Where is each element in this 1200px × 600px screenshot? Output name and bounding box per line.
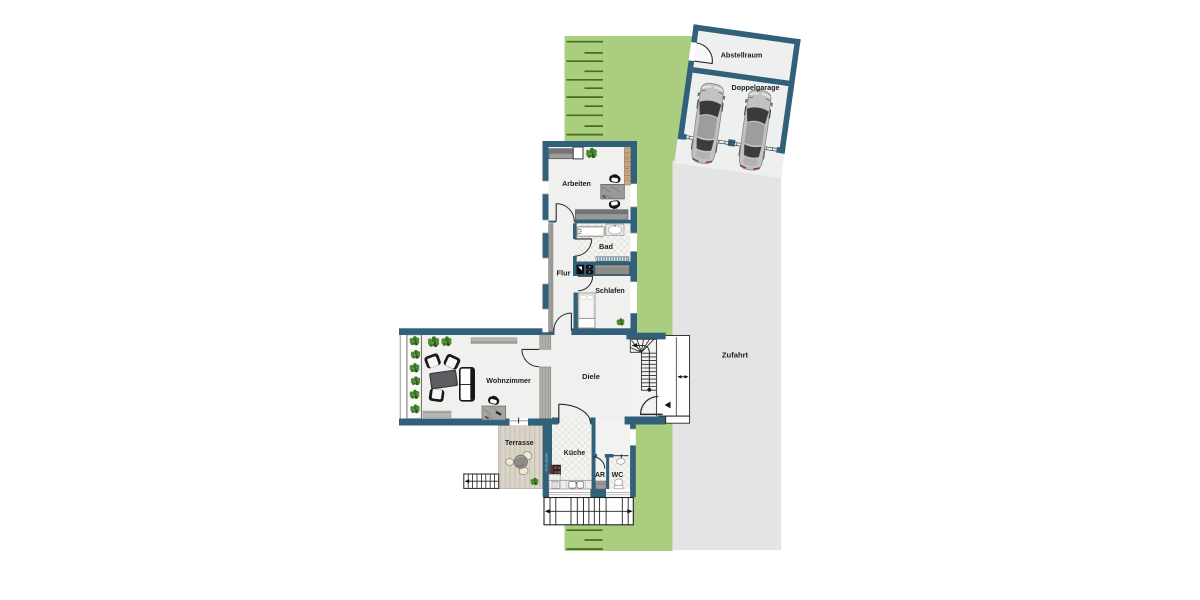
- svg-text:Arbeiten: Arbeiten: [562, 180, 591, 188]
- svg-text:Wohnzimmer: Wohnzimmer: [486, 377, 531, 385]
- svg-text:Doppelgarage: Doppelgarage: [732, 83, 780, 92]
- svg-text:VP PLANUNG: VP PLANUNG: [545, 452, 549, 472]
- svg-text:Terrasse: Terrasse: [505, 440, 534, 447]
- svg-text:Bad: Bad: [599, 242, 613, 251]
- svg-text:Abstellraum: Abstellraum: [721, 51, 763, 60]
- svg-text:Diele: Diele: [582, 372, 600, 381]
- svg-text:Zufahrt: Zufahrt: [722, 351, 749, 360]
- svg-text:Schlafen: Schlafen: [595, 287, 625, 295]
- svg-text:WC: WC: [612, 472, 624, 479]
- svg-text:AR: AR: [595, 472, 605, 479]
- svg-text:Küche: Küche: [564, 450, 586, 457]
- svg-text:Flur: Flur: [557, 268, 571, 277]
